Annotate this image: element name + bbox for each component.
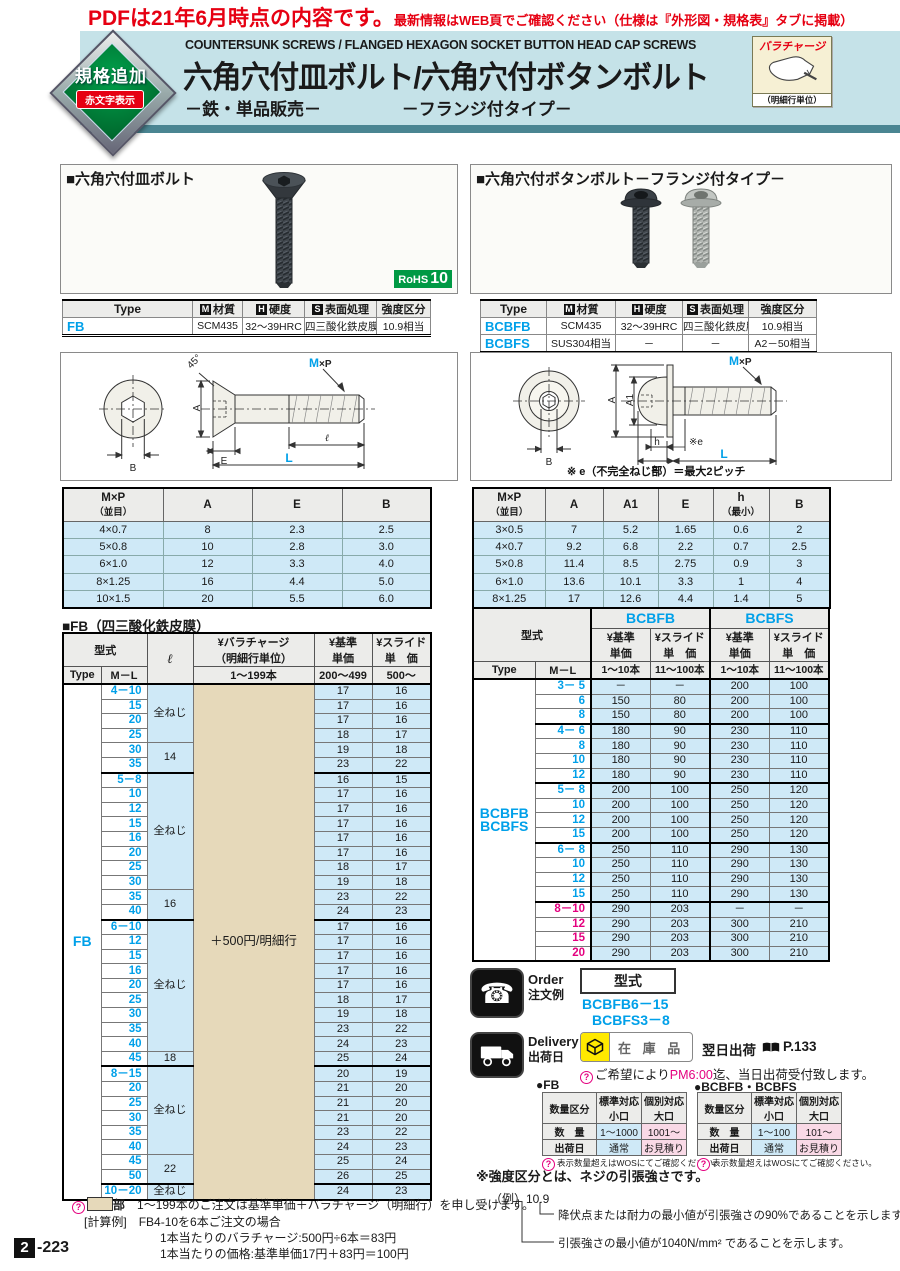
ml-value: 3－ 5 — [535, 679, 591, 694]
dim-a-header: A — [545, 488, 603, 521]
bcbfb-slide-price: 110 — [650, 872, 710, 887]
dim-label-a: A — [192, 404, 203, 411]
b-base-h2: 単価 — [592, 645, 650, 661]
bcbfb-base-price: 290 — [591, 917, 650, 932]
s-base-h1: ¥基準 — [711, 629, 769, 645]
dim-h-header: h（最小） — [713, 488, 769, 521]
dim-a-header: A — [163, 488, 252, 521]
bcbfs-base-price: 230 — [710, 724, 769, 739]
strength-definition: ※強度区分とは、ネジの引張強さです。 — [476, 1166, 708, 1185]
bcbfb-base-price: － — [591, 679, 650, 694]
price-row: FB4－10全ねじ＋500円/明細行1716 — [63, 684, 431, 699]
dim-a1: 5.2 — [603, 521, 658, 538]
bcbfs-base-price: 230 — [710, 739, 769, 754]
ind-l2: 大口 — [797, 1108, 841, 1123]
bcbfb-slide-price: 80 — [650, 694, 710, 709]
ship-ind: お見積り — [797, 1140, 842, 1156]
bcbfb-slide-price: 203 — [650, 932, 710, 947]
paracharge-merged-cell: ＋500円/明細行 — [193, 684, 314, 1200]
bcbfb-slide-qty: 11～100本 — [650, 661, 710, 679]
button-photo-panel: ■六角穴付ボタンボルト－フランジ付タイプ－ — [470, 164, 892, 294]
dim-row: 8×1.251712.64.41.45 — [473, 591, 830, 609]
ml-value: 20 — [101, 978, 147, 993]
ml-value: 15 — [101, 949, 147, 964]
bcbfs-base-price: 200 — [710, 709, 769, 724]
dim-a: 9.2 — [545, 538, 603, 555]
qty-class-header: 数量区分 — [543, 1093, 597, 1124]
ml-value: 4－ 6 — [535, 724, 591, 739]
qty-row: 数 量 1～100 101～ — [698, 1124, 842, 1140]
ml-value: 12 — [535, 768, 591, 783]
slide-price: 20 — [372, 1111, 431, 1126]
ml-value: 6 — [535, 694, 591, 709]
base-price: 26 — [314, 1169, 372, 1184]
hardness-icon: H — [632, 304, 643, 315]
type-subheader: Type — [63, 667, 101, 685]
ml-value: 12 — [101, 935, 147, 950]
type-subheader: Type — [473, 661, 535, 679]
slide-price: 16 — [372, 831, 431, 846]
hardness-label: 硬度 — [269, 304, 291, 316]
bcbfs-slide-price: 120 — [769, 798, 829, 813]
bcbfs-slide-price: 120 — [769, 813, 829, 828]
badge-title: 規格追加 — [48, 62, 174, 87]
ml-value: 8－10 — [535, 902, 591, 917]
dim-b: 4.0 — [342, 556, 431, 573]
calc-example-label: [計算例] — [84, 1215, 127, 1229]
model-header: 型式 — [63, 633, 147, 667]
bcb-spec-table: Type M材質 H硬度 S表面処理 強度区分 BCBFB SCM435 32～… — [480, 299, 817, 354]
base-price: 16 — [314, 773, 372, 788]
bcbfb-slide-price: 110 — [650, 887, 710, 902]
catalog-book-icon[interactable] — [762, 1041, 780, 1054]
dim-b: 5.0 — [342, 573, 431, 590]
rohs-badge: RoHS10 — [394, 270, 452, 288]
button-drawing-panel: B A A1 h ※e E L M×P ※ e（不完全ねじ部）＝最大2ピッチ — [470, 352, 892, 481]
dim-row: 6×1.0123.34.0 — [63, 556, 431, 573]
bcbfs-slide-price: 120 — [769, 827, 829, 842]
slide-price: 23 — [372, 1140, 431, 1155]
dim-row: 4×0.782.32.5 — [63, 521, 431, 538]
base-price: 17 — [314, 699, 372, 714]
bcbfs-base-price: 200 — [710, 694, 769, 709]
base-price: 23 — [314, 890, 372, 905]
base-price: 24 — [314, 1037, 372, 1052]
dim-a: 20 — [163, 591, 252, 609]
truck-glyph — [480, 1042, 514, 1068]
base-price: 21 — [314, 1082, 372, 1097]
bcbfb-base-price: 180 — [591, 739, 650, 754]
phone-icon: ☎ — [470, 968, 524, 1018]
qty-ind-header: 個別対応大口 — [797, 1093, 842, 1124]
countersunk-photo-panel: ■六角穴付皿ボルト RoHS10 — [60, 164, 458, 294]
dim-label-a: A — [607, 396, 618, 403]
page-subtitles: －鉄・単品販売－ －フランジ付タイプ－ — [185, 95, 572, 120]
ml-subheader: M－L — [535, 661, 591, 679]
bcbfb-slide-price: 90 — [650, 739, 710, 754]
spec-surface-header: S表面処理 — [683, 300, 749, 318]
qty-label: 数 量 — [698, 1124, 752, 1140]
spec-strength-header: 強度区分 — [377, 300, 431, 318]
base-price: 17 — [314, 846, 372, 861]
dim-mxp: 6×1.0 — [473, 573, 545, 590]
dim-mxp-l2: （並目） — [64, 504, 163, 518]
fb-type-column-label[interactable]: FB — [63, 684, 101, 1200]
dim-e: 4.4 — [658, 591, 713, 609]
dim-h: 0.7 — [713, 538, 769, 555]
slide-price-header: ¥スライド単 価 — [372, 633, 431, 667]
slide-price: 23 — [372, 904, 431, 919]
slide-price: 16 — [372, 802, 431, 817]
fb-qty-block: 数量区分 標準対応小口 個別対応大口 数 量 1～1000 1001～ 出荷日 … — [542, 1092, 686, 1171]
dim-h: 0.9 — [713, 556, 769, 573]
bcbfs-base-price: 230 — [710, 753, 769, 768]
std-l2: 小口 — [597, 1108, 641, 1123]
base-price: 21 — [314, 1111, 372, 1126]
bcbfs-slide-price: 110 — [769, 753, 829, 768]
calc-example-line2: 1本当たりのバラチャージ:500円÷6本＝83円 — [160, 1230, 396, 1246]
base-price: 19 — [314, 875, 372, 890]
qty-std-range: 1～100 — [752, 1124, 797, 1140]
paracharge-qty-subheader: 1～199本 — [193, 667, 314, 685]
material-icon: M — [200, 304, 211, 315]
mxp-p: ×P — [319, 359, 332, 370]
calc-example-line3: 1本当たりの価格:基準単価17円＋83円＝100円 — [160, 1246, 409, 1262]
ml-value: 12 — [535, 813, 591, 828]
bcbfb-slide-price: 203 — [650, 902, 710, 917]
dim-a: 17 — [545, 591, 603, 609]
truck-icon — [470, 1032, 524, 1078]
dim-b: 6.0 — [342, 591, 431, 609]
bcbfb-slide-price: 100 — [650, 827, 710, 842]
slide-price: 22 — [372, 1125, 431, 1140]
dim-row: 6×1.013.610.13.314 — [473, 573, 830, 590]
b-base-h1: ¥基準 — [592, 629, 650, 645]
bcbfb-slide-price: 100 — [650, 783, 710, 798]
qty-std-header: 標準対応小口 — [752, 1093, 797, 1124]
dim-e: 4.4 — [252, 573, 342, 590]
bcbfs-slide-header: ¥スライド単 価 — [769, 628, 829, 661]
dim-row: 5×0.8102.83.0 — [63, 538, 431, 555]
length-header: ℓ — [147, 633, 193, 684]
dim-mxp: 5×0.8 — [473, 556, 545, 573]
thread-length: 14 — [147, 743, 193, 773]
paracharge-badge-title: バラチャージ — [753, 37, 831, 54]
slide-price: 16 — [372, 949, 431, 964]
paracharge-h1: ¥バラチャージ — [194, 634, 314, 650]
order-example-2: BCBFS3－8 — [592, 1012, 670, 1028]
surface-icon: S — [687, 304, 698, 315]
page-number-box: 2 — [14, 1238, 35, 1258]
ml-value: 35 — [101, 1022, 147, 1037]
ml-value: 35 — [101, 890, 147, 905]
base-price: 23 — [314, 1125, 372, 1140]
spec-strength-header: 強度区分 — [749, 300, 817, 318]
thread-length: 全ねじ — [147, 920, 193, 1052]
bcbfs-base-price: 200 — [710, 679, 769, 694]
slide-h2: 単 価 — [373, 650, 431, 666]
dim-mxp: 5×0.8 — [63, 538, 163, 555]
slide-price: 22 — [372, 757, 431, 772]
bcbfs-type-link[interactable]: BCBFS — [481, 335, 547, 353]
incomplete-thread-note: ※ e（不完全ねじ部）＝最大2ピッチ — [567, 464, 746, 478]
ml-value: 40 — [101, 904, 147, 919]
bcbfs-slide-price: 120 — [769, 783, 829, 798]
calc-example-case: FB4-10を6本ご注文の場合 — [139, 1215, 281, 1229]
base-price: 17 — [314, 978, 372, 993]
bcbfs-slide-price: 130 — [769, 843, 829, 858]
fb-hardness: 32～39HRC — [243, 318, 305, 336]
dim-label-b: B — [546, 457, 553, 468]
bcb-dimension-table: M×P（並目） A A1 E h（最小） B 3×0.575.21.650.62… — [472, 487, 831, 609]
ml-value: 40 — [101, 1140, 147, 1155]
bcbfb-surface: 四三酸化鉄皮膜 — [683, 318, 749, 335]
pdf-notice-sub: 最新情報はWEB頁でご確認ください（仕様は『外形図・規格表』タブに掲載） — [394, 13, 853, 28]
dim-a1: 8.5 — [603, 556, 658, 573]
ind-l2: 大口 — [642, 1108, 686, 1123]
base-price: 17 — [314, 684, 372, 699]
hardness-label: 硬度 — [645, 304, 667, 316]
base-price: 19 — [314, 1008, 372, 1023]
fb-surface: 四三酸化鉄皮膜 — [305, 318, 377, 336]
title-english: COUNTERSUNK SCREWS / FLANGED HEXAGON SOC… — [185, 38, 696, 52]
slide-price: 24 — [372, 1051, 431, 1066]
button-screw-photo-silver — [679, 187, 723, 269]
dim-b: 2.5 — [342, 521, 431, 538]
ml-value: 15 — [101, 699, 147, 714]
dim-row: 8×1.25164.45.0 — [63, 573, 431, 590]
dim-e-header: E — [252, 488, 342, 521]
thread-length: 18 — [147, 1051, 193, 1066]
b-slide-h2: 単 価 — [651, 645, 710, 661]
slide-price: 18 — [372, 1008, 431, 1023]
qty-header-row: 数量区分 標準対応小口 個別対応大口 — [698, 1093, 842, 1124]
dim-h: 1 — [713, 573, 769, 590]
dim-e: 5.5 — [252, 591, 342, 609]
ml-value: 15 — [101, 817, 147, 832]
dim-label-45: 45° — [185, 353, 203, 371]
ml-value: 20 — [535, 946, 591, 961]
bcbfb-base-price: 180 — [591, 753, 650, 768]
ml-value: 5－8 — [101, 773, 147, 788]
paracharge-badge-unit: （明細行単位） — [753, 93, 831, 106]
slide-price: 20 — [372, 1096, 431, 1111]
base-price-header: ¥基準単価 — [314, 633, 372, 667]
base-price: 18 — [314, 993, 372, 1008]
slide-price: 22 — [372, 890, 431, 905]
dim-a: 10 — [163, 538, 252, 555]
dim-label-l-big: L — [720, 447, 727, 461]
dim-a: 11.4 — [545, 556, 603, 573]
ml-value: 40 — [101, 1037, 147, 1052]
bcbfs-base-price: 300 — [710, 932, 769, 947]
bcbfs-slide-price: 100 — [769, 694, 829, 709]
ship-row: 出荷日 通常 お見積り — [698, 1140, 842, 1156]
ml-value: 6－10 — [101, 920, 147, 935]
price-header-row2: Type M－L 1～199本 200～499 500～ — [63, 667, 431, 685]
slide-price: 16 — [372, 846, 431, 861]
paracharge-h2: （明細行単位） — [194, 650, 314, 666]
dim-mxp: 3×0.5 — [473, 521, 545, 538]
dim-e: 3.3 — [252, 556, 342, 573]
material-label: 材質 — [577, 304, 599, 316]
dim-mxp-l1: M×P — [64, 492, 163, 504]
std-l2: 小口 — [752, 1108, 796, 1123]
ml-subheader: M－L — [101, 667, 147, 685]
stock-cube-icon — [581, 1033, 610, 1061]
dim-b-header: B — [769, 488, 830, 521]
slide-price: 17 — [372, 993, 431, 1008]
slide-price: 16 — [372, 699, 431, 714]
model-format-box: 型式 — [580, 968, 676, 994]
bcbfs-base-price: 290 — [710, 858, 769, 873]
slide-price: 16 — [372, 684, 431, 699]
header-band-shadow — [90, 125, 900, 133]
bcbfb-slide-price: 100 — [650, 798, 710, 813]
bcbfs-slide-qty: 11～100本 — [769, 661, 829, 679]
bcbfs-slide-price: 210 — [769, 932, 829, 947]
bcbfb-type-link[interactable]: BCBFB — [481, 318, 547, 335]
ind-l1: 個別対応 — [642, 1093, 686, 1108]
hardness-icon: H — [256, 304, 267, 315]
slide-h1: ¥スライド — [373, 634, 431, 650]
dim-h: 0.6 — [713, 521, 769, 538]
order-label-jp: 注文例 — [528, 988, 564, 1003]
material-label: 材質 — [213, 304, 235, 316]
dim-e: 2.75 — [658, 556, 713, 573]
bcbfs-slide-price: 110 — [769, 768, 829, 783]
bcbfb-slide-price: 110 — [650, 843, 710, 858]
slide-price: 25 — [372, 1169, 431, 1184]
fb-material: SCM435 — [193, 318, 243, 336]
bcbfb-slide-price: － — [650, 679, 710, 694]
question-icon: ? — [580, 1071, 593, 1084]
base-price: 17 — [314, 949, 372, 964]
dim-mxp-header: M×P（並目） — [473, 488, 545, 521]
dim-mxp: 4×0.7 — [63, 521, 163, 538]
ship-label: 出荷日 — [543, 1140, 597, 1156]
ship-std: 通常 — [752, 1140, 797, 1156]
ind-l1: 個別対応 — [797, 1093, 841, 1108]
base-price: 17 — [314, 920, 372, 935]
bcbfs-base-price: 250 — [710, 827, 769, 842]
page-reference[interactable]: P.133 — [783, 1039, 817, 1054]
dim-header-row: M×P（並目） A E B — [63, 488, 431, 521]
dim-a: 13.6 — [545, 573, 603, 590]
ml-value: 30 — [101, 1111, 147, 1126]
ml-value: 10 — [535, 798, 591, 813]
base-price: 23 — [314, 1022, 372, 1037]
mxp-m: M — [309, 356, 319, 370]
bcb-qty-note-text: 表示数量超えはWOSにてご確認ください。 — [712, 1158, 877, 1168]
ship-row: 出荷日 通常 お見積り — [543, 1140, 687, 1156]
bcbfb-base-price: 250 — [591, 872, 650, 887]
slide-price: 18 — [372, 875, 431, 890]
base-price: 17 — [314, 817, 372, 832]
bcbfs-base-price: 300 — [710, 917, 769, 932]
question-icon: ? — [72, 1201, 85, 1214]
bcbfb-base-price: 200 — [591, 783, 650, 798]
base-price: 24 — [314, 904, 372, 919]
delivery-section: Delivery 出荷日 在 庫 品 翌日出荷 P.133 ?ご希望によりPM6… — [470, 1032, 890, 1078]
dim-h-l2: （最小） — [714, 504, 769, 518]
page-title: 六角穴付皿ボルト/六角穴付ボタンボルト — [183, 52, 709, 97]
bcbfb-base-price: 180 — [591, 724, 650, 739]
spec-material-header: M材質 — [547, 300, 616, 318]
ml-value: 10 — [101, 788, 147, 803]
bcbfb-base-price: 290 — [591, 932, 650, 947]
ship-label: 出荷日 — [698, 1140, 752, 1156]
bcbfs-base-price: 230 — [710, 768, 769, 783]
bcbfb-base-price: 250 — [591, 843, 650, 858]
base-price: 25 — [314, 1051, 372, 1066]
dim-e: 2.8 — [252, 538, 342, 555]
ml-value: 8 — [535, 709, 591, 724]
base-price: 17 — [314, 788, 372, 803]
base-h2: 単価 — [315, 650, 372, 666]
button-screw-photo-black — [619, 187, 663, 269]
slide-price: 24 — [372, 1155, 431, 1170]
mxp-p: ×P — [739, 357, 752, 368]
hand-screw-icon — [762, 54, 822, 84]
base-price: 18 — [314, 861, 372, 876]
spec-type-header: Type — [63, 300, 193, 318]
base-price: 17 — [314, 714, 372, 729]
bcbfb-slide-price: 90 — [650, 724, 710, 739]
fb-spec-table: Type M材質 H硬度 S表面処理 強度区分 FB SCM435 32～39H… — [62, 299, 431, 337]
slide-price: 16 — [372, 920, 431, 935]
bcbfs-base-price: 250 — [710, 798, 769, 813]
dim-h-l1: h — [714, 492, 769, 504]
bcbfs-base-price: 290 — [710, 843, 769, 858]
bcbfb-group-header: BCBFB — [591, 608, 710, 628]
dim-label-l-small: ℓ — [325, 433, 329, 444]
fb-qty-title: ●FB — [536, 1078, 559, 1092]
surface-label: 表面処理 — [325, 304, 369, 316]
ml-value: 25 — [101, 861, 147, 876]
paracharge-badge: バラチャージ （明細行単位） — [752, 36, 832, 107]
ml-value: 16 — [101, 964, 147, 979]
bcb-qty-table: 数量区分 標準対応小口 個別対応大口 数 量 1～100 101～ 出荷日 通常… — [697, 1092, 842, 1156]
rohs-label: RoHS — [398, 274, 428, 286]
ml-value: 15 — [535, 827, 591, 842]
swatch-label: 部 — [113, 1198, 125, 1212]
order-example-1: BCBFB6－15 — [582, 996, 668, 1012]
bcbfs-hardness: － — [616, 335, 683, 353]
qty-label: 数 量 — [543, 1124, 597, 1140]
thread-length: 全ねじ — [147, 773, 193, 890]
price-header-row1: 型式 ℓ ¥バラチャージ（明細行単位） ¥基準単価 ¥スライド単 価 — [63, 633, 431, 667]
bcbfb-slide-price: 90 — [650, 768, 710, 783]
strength-bracket-lines — [508, 1202, 556, 1254]
thread-length: 16 — [147, 890, 193, 920]
ml-value: 4－10 — [101, 684, 147, 699]
slide-price: 15 — [372, 773, 431, 788]
paracharge-note-line1: ?部 1～199本のご注文は基準単価＋バラチャージ（明細行）を申し受けます。 — [72, 1197, 534, 1214]
dim-b: 2 — [769, 521, 830, 538]
ship-ind: お見積り — [642, 1140, 687, 1156]
slide-price: 16 — [372, 978, 431, 993]
fb-type-link[interactable]: FB — [63, 318, 193, 336]
spec-row-fb: FB SCM435 32～39HRC 四三酸化鉄皮膜 10.9相当 — [63, 318, 431, 336]
delivery-label-jp: 出荷日 — [528, 1050, 564, 1065]
dim-label-h: h — [654, 437, 660, 448]
dim-b: 4 — [769, 573, 830, 590]
bcb-type-column-label[interactable]: BCBFBBCBFS — [473, 679, 535, 961]
order-section: ☎ Order 注文例 型式 BCBFB6－15 BCBFS3－8 — [470, 968, 890, 1028]
b-slide-h1: ¥スライド — [651, 629, 710, 645]
bcbfb-base-price: 150 — [591, 709, 650, 724]
